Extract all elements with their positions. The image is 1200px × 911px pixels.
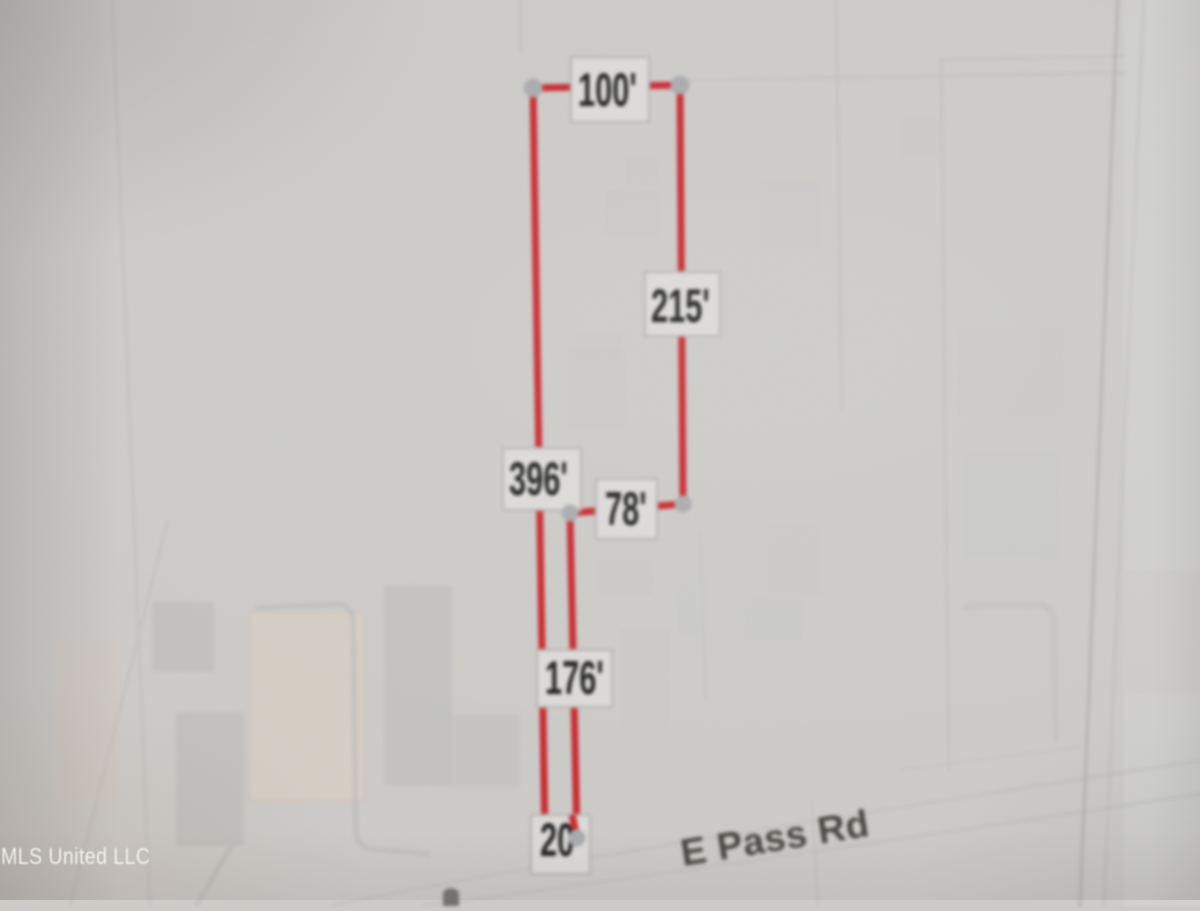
svg-text:78': 78'	[605, 484, 647, 536]
svg-text:215': 215'	[651, 281, 710, 333]
svg-text:100': 100'	[578, 65, 637, 117]
svg-text:176': 176'	[545, 653, 604, 705]
svg-text:396': 396'	[509, 454, 568, 506]
